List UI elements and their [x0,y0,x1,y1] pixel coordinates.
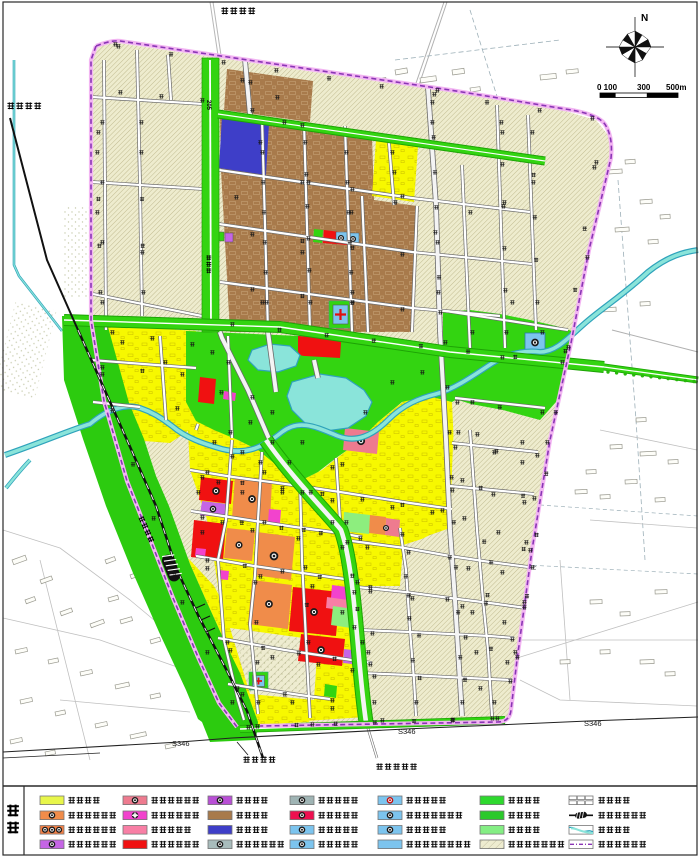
svg-text:0 100: 0 100 [597,83,618,92]
svg-text:N: N [641,13,648,24]
svg-text:205: 205 [205,100,211,111]
svg-text:S346: S346 [172,739,190,748]
svg-text:500m: 500m [666,83,686,92]
svg-text:300: 300 [637,83,651,92]
